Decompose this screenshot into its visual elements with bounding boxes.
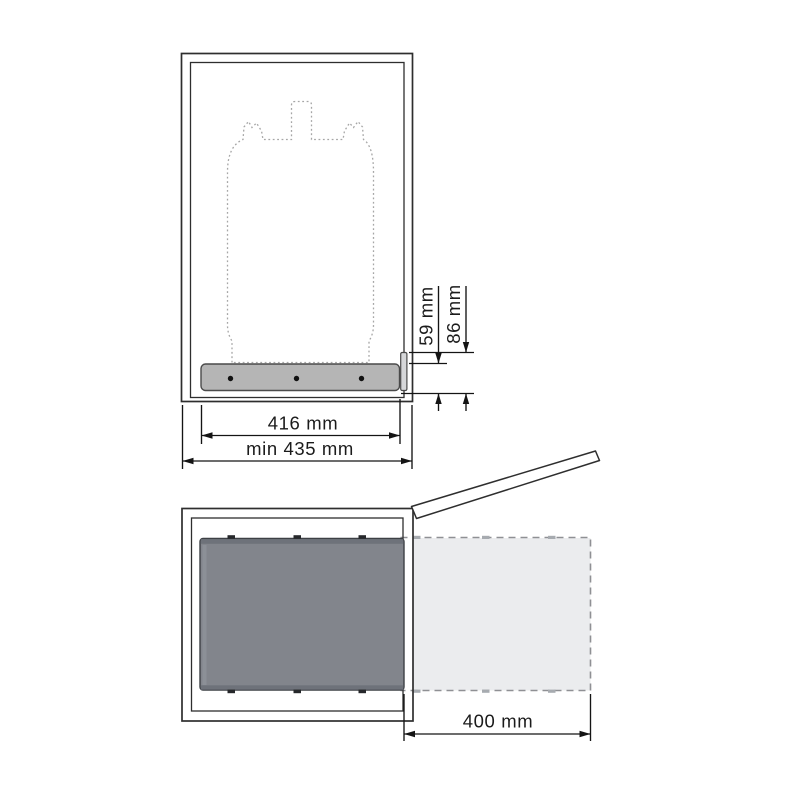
plan-view-figure: 400 mm	[182, 451, 600, 741]
tab	[294, 535, 302, 539]
drawer-extended-ghost	[413, 538, 591, 691]
arrow-right-icon	[580, 731, 591, 737]
technical-drawing-page: 59 mm 86 mm 416 mm min 435 mm	[0, 0, 800, 800]
pullout-platform	[200, 539, 404, 691]
platform-left-edge	[203, 545, 207, 685]
dim-label-400: 400 mm	[463, 711, 533, 732]
tab	[413, 690, 421, 693]
tab	[548, 536, 556, 539]
tab	[482, 690, 490, 693]
screw-hole	[228, 376, 233, 381]
open-door	[412, 451, 600, 519]
dim-label-59: 59 mm	[416, 286, 437, 346]
arrow-right-icon	[389, 432, 400, 438]
arrow-right-icon	[401, 458, 412, 464]
arrow-up-icon	[435, 394, 441, 405]
arrow-up-icon	[463, 394, 469, 405]
gas-bottle-outline	[228, 102, 374, 363]
cabinet-inner-wall	[191, 63, 405, 398]
tab	[359, 690, 367, 694]
arrow-left-icon	[202, 432, 213, 438]
tab	[228, 690, 236, 694]
screw-hole	[294, 376, 299, 381]
installation-diagram: 59 mm 86 mm 416 mm min 435 mm	[0, 0, 800, 800]
dim-label-min435: min 435 mm	[246, 438, 354, 459]
end-bracket	[401, 353, 407, 391]
dim-label-416: 416 mm	[268, 413, 338, 434]
tab	[359, 535, 367, 539]
screw-hole	[359, 376, 364, 381]
arrow-down-icon	[435, 353, 441, 364]
dim-label-86: 86 mm	[443, 284, 464, 344]
arrow-left-icon	[183, 458, 194, 464]
tab	[413, 536, 421, 539]
front-view-figure: 59 mm 86 mm 416 mm min 435 mm	[182, 54, 475, 470]
platform-front-rail	[201, 539, 403, 544]
tab	[294, 690, 302, 694]
arrow-left-icon	[404, 731, 415, 737]
tab	[548, 690, 556, 693]
platform-back-rail	[201, 685, 403, 689]
tab	[482, 536, 490, 539]
tab	[228, 535, 236, 539]
cabinet-outer-wall	[182, 54, 413, 402]
